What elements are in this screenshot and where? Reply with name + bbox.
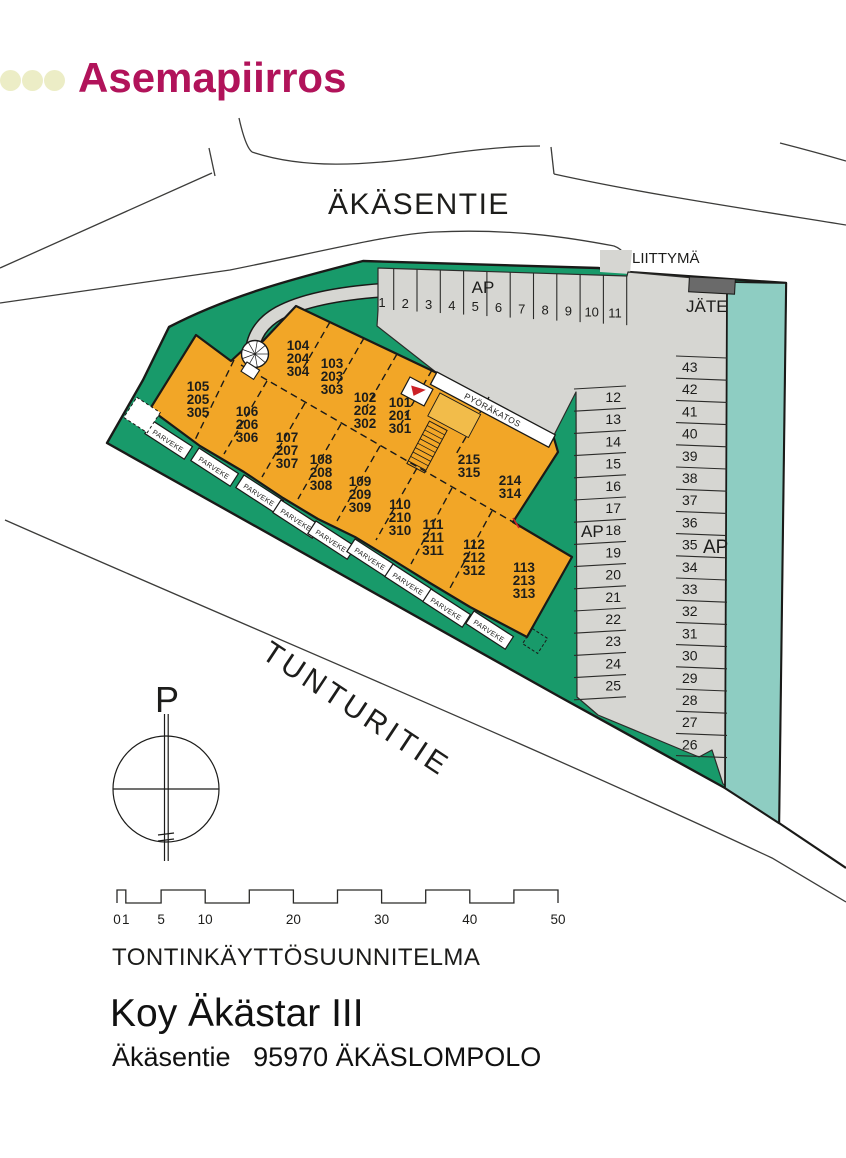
scale-bar: 0151020304050 (113, 890, 565, 927)
ap-label-top: AP (472, 278, 495, 297)
unit-label: 107207307 (276, 430, 299, 471)
company-name: Koy Äkästar III (110, 992, 364, 1036)
stall-number: 16 (605, 478, 621, 494)
road-edge (239, 118, 252, 152)
company-address: Äkäsentie 95970 ÄKÄSLOMPOLO (112, 1042, 541, 1073)
stall-number: 10 (584, 304, 598, 319)
unit-label: 104204304 (287, 338, 310, 379)
unit-label: 214314 (499, 473, 522, 501)
unit-label: 105205305 (187, 379, 210, 420)
scale-bar-line (117, 890, 558, 903)
site-plan-drawing: JÄTE 1234567891011 121314151617181920212… (0, 0, 846, 1158)
unit-label: 103203303 (321, 356, 344, 397)
stall-number: 24 (605, 655, 621, 671)
title-dot-icon (22, 70, 43, 91)
scale-tick-label: 50 (550, 912, 565, 927)
teal-strip (725, 282, 786, 823)
stall-number: 43 (682, 359, 698, 375)
stall-number: 21 (605, 589, 621, 605)
stall-number: 30 (682, 648, 698, 664)
stall-number: 37 (682, 492, 698, 508)
road-edge (0, 173, 212, 268)
scale-tick-label: 5 (157, 912, 165, 927)
stall-number: 27 (682, 714, 698, 730)
stall-number: 12 (605, 389, 621, 405)
stall-number: 36 (682, 514, 698, 530)
road-edge (209, 148, 215, 176)
unit-label: 113213313 (513, 560, 536, 601)
stall-number: 19 (605, 544, 621, 560)
title-dot-icon (44, 70, 65, 91)
stall-number: 11 (608, 305, 622, 320)
stall-number: 7 (518, 301, 525, 316)
road-edge (252, 146, 540, 164)
plan-type-label: TONTINKÄYTTÖSUUNNITELMA (112, 944, 480, 972)
stall-number: 32 (682, 603, 698, 619)
stall-number: 41 (682, 403, 698, 419)
stall-number: 2 (402, 296, 409, 311)
title-dot-icon (0, 70, 21, 91)
stall-number: 20 (605, 567, 621, 583)
stall-number: 28 (682, 692, 698, 708)
unit-label: 106206306 (236, 404, 259, 445)
unit-label: 102202302 (354, 390, 377, 431)
stall-number: 6 (495, 300, 502, 315)
road-edge (554, 174, 846, 225)
stall-number: 29 (682, 670, 698, 686)
ap-label-right: AP (703, 537, 728, 558)
entrance-drive (600, 250, 632, 274)
north-label: P (155, 679, 179, 720)
stall-number: 22 (605, 611, 621, 627)
boundary-line (779, 823, 846, 868)
unit-label: 101201301 (389, 395, 412, 436)
akasentie-road-label: ÄKÄSENTIE (328, 188, 510, 221)
stall-number: 42 (682, 381, 698, 397)
scale-tick-label: 40 (462, 912, 477, 927)
scale-tick-label: 10 (198, 912, 213, 927)
unit-label: 108208308 (310, 452, 333, 493)
road-edge (551, 147, 554, 174)
stall-number: 8 (541, 302, 548, 317)
stall-number: 35 (682, 537, 698, 553)
stall-number: 15 (605, 456, 621, 472)
stall-number: 38 (682, 470, 698, 486)
stall-number: 33 (682, 581, 698, 597)
road-edge (780, 143, 846, 161)
unit-label: 110210310 (389, 497, 412, 538)
ap-label-middle: AP (581, 522, 604, 541)
tunturitie-road-label: TUNTURITIE (256, 635, 456, 783)
unit-label: 109209309 (349, 474, 372, 515)
scale-tick-label: 30 (374, 912, 389, 927)
stall-number: 5 (472, 299, 479, 314)
liittyma-label: LIITTYMÄ (632, 250, 700, 267)
scale-tick-label: 0 (113, 912, 121, 927)
stall-number: 25 (605, 678, 621, 694)
unit-label: 215315 (458, 452, 481, 480)
stall-number: 17 (605, 500, 621, 516)
stall-number: 34 (682, 559, 698, 575)
page-title-block: Asemapiirros (78, 54, 346, 102)
jate-label: JÄTE (686, 297, 728, 316)
stall-number: 31 (682, 625, 698, 641)
stall-number: 13 (605, 411, 621, 427)
stall-number: 40 (682, 426, 698, 442)
stall-number: 23 (605, 633, 621, 649)
stall-number: 26 (682, 736, 698, 752)
page: { "title": { "text": "Asemapiirros" }, "… (0, 0, 846, 1158)
stall-number: 4 (448, 298, 455, 313)
waste-shelter-box (689, 277, 736, 294)
unit-label: 112212312 (463, 537, 486, 578)
scale-tick-label: 1 (122, 912, 130, 927)
compass (113, 714, 219, 861)
stall-number: 39 (682, 448, 698, 464)
stall-number: 9 (565, 303, 572, 318)
stall-number: 14 (605, 433, 621, 449)
stall-number: 18 (605, 522, 621, 538)
stall-number: 3 (425, 297, 432, 312)
page-title: Asemapiirros (78, 54, 346, 101)
stall-number: 1 (378, 295, 385, 310)
unit-label: 111211311 (422, 517, 444, 558)
scale-tick-label: 20 (286, 912, 301, 927)
